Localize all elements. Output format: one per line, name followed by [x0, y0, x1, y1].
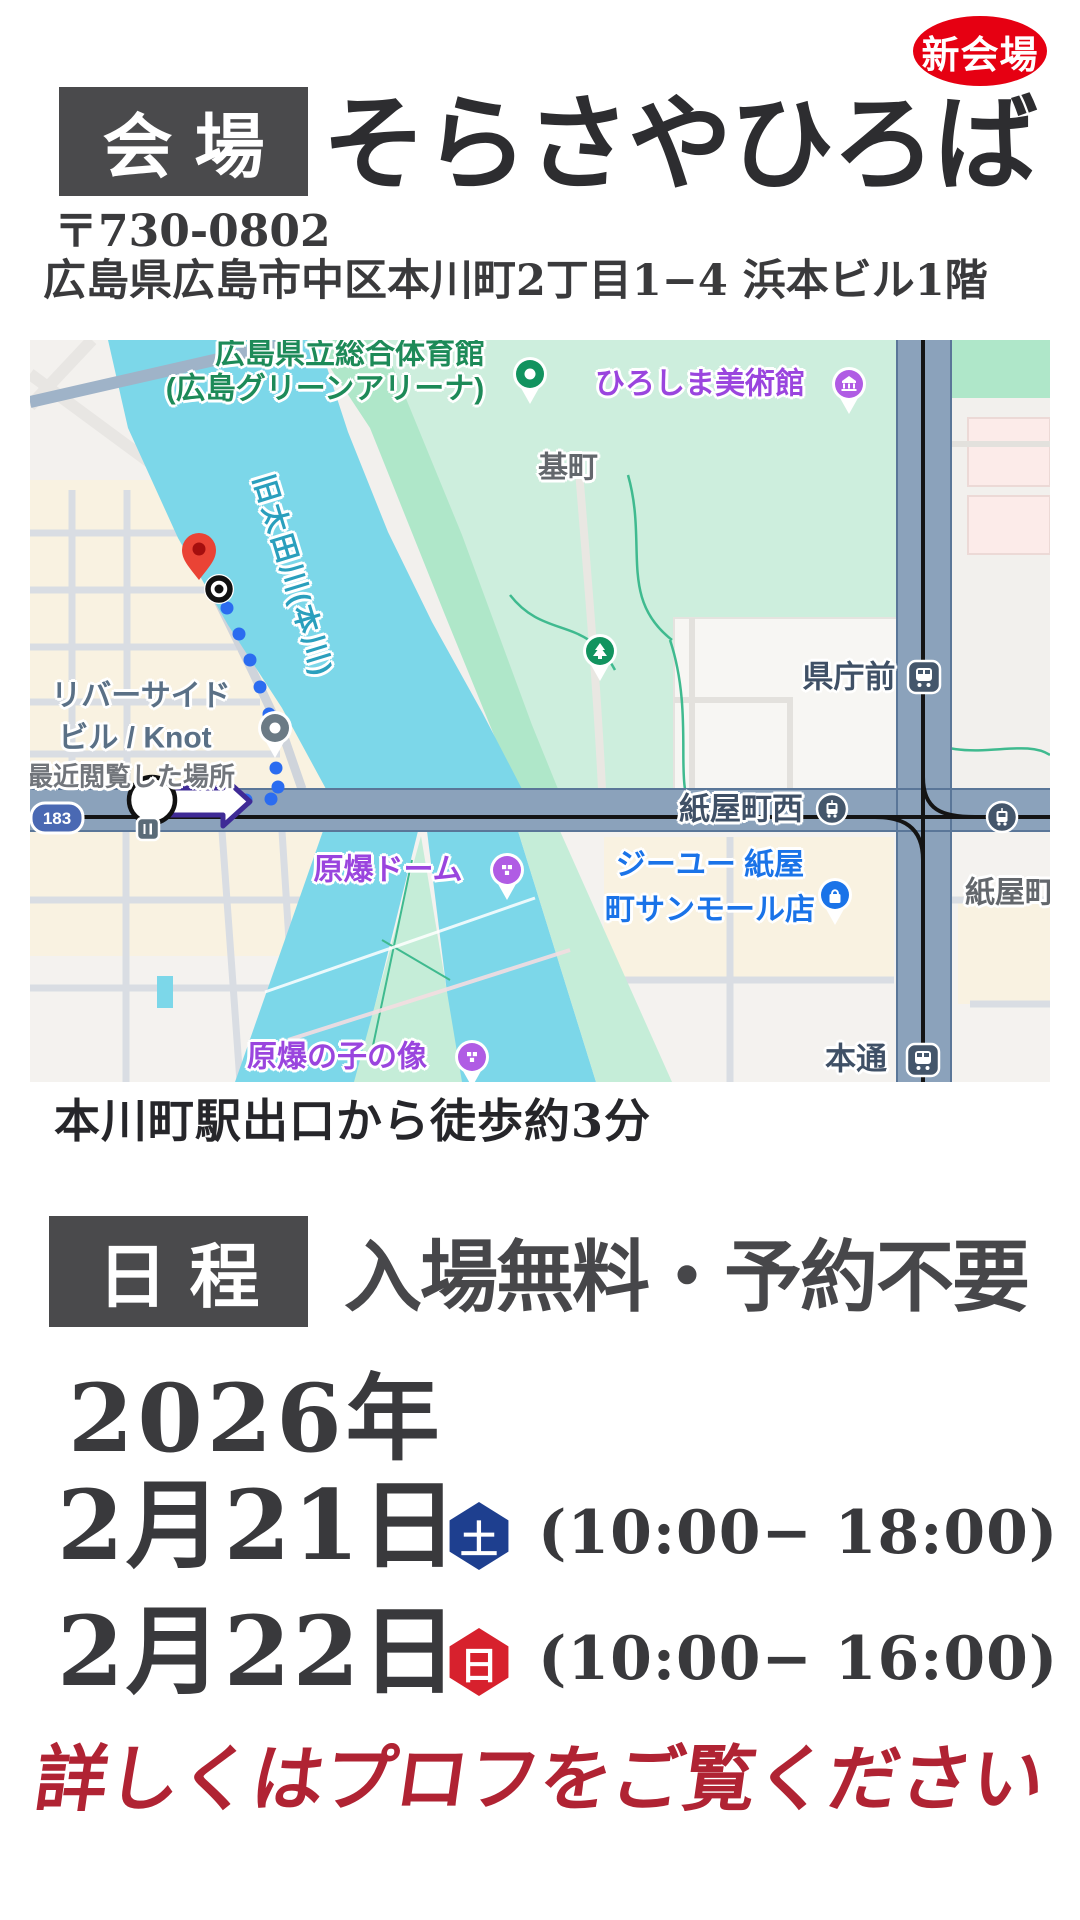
- map-label-gym-line1: 広島県立総合体育館: [215, 340, 485, 370]
- map-label-museum: ひろしま美術館: [595, 368, 805, 400]
- map-label-riverside-line1: リバーサイド: [51, 680, 230, 712]
- svg-text:183: 183: [43, 809, 71, 828]
- tram-stop-icon: [987, 802, 1017, 832]
- map-label-kamiyacho: 紙屋町: [965, 877, 1050, 909]
- map-label-kamiyacho-nishi: 紙屋町西: [679, 794, 803, 827]
- venue-postal-code: 〒730-0802: [54, 210, 331, 254]
- map-label-gu-line2: 町サンモール店: [605, 894, 815, 926]
- event-date-1: 2月21日: [57, 1478, 459, 1574]
- restaurant-icon: [137, 818, 159, 840]
- map-label-hondori: 本通: [825, 1044, 887, 1077]
- venue-address: 広島県広島市中区本川町2丁目1−4 浜本ビル1階: [43, 260, 988, 303]
- map-label-kencho-mae: 県庁前: [803, 662, 896, 695]
- map-label-riverside-line2: ビル / Knot: [58, 722, 211, 754]
- map-label-genbaku-dome: 原爆ドーム: [313, 854, 462, 886]
- event-time-2: (10:00− 16:00): [538, 1629, 1058, 1689]
- footer-note: 詳しくはプロフをご覧ください: [0, 1744, 1080, 1816]
- access-note: 本川町駅出口から徒歩約3分: [54, 1098, 651, 1144]
- tram-stop-icon: [817, 794, 847, 824]
- new-venue-badge: 新会場: [913, 16, 1047, 86]
- event-time-1: (10:00− 18:00): [538, 1503, 1058, 1563]
- train-station-icon: [908, 661, 940, 693]
- map-label-gym-line2: (広島グリーンアリーナ): [166, 373, 484, 405]
- event-date-2: 2月22日: [57, 1604, 459, 1700]
- map-label-recent-place: 最近閲覧した場所: [30, 763, 235, 790]
- map-label-motomachi: 基町: [538, 452, 598, 484]
- train-station-icon: [907, 1044, 939, 1076]
- flyer-page: 新会場 会場 そらさやひろば 〒730-0802 広島県広島市中区本川町2丁目1…: [0, 0, 1080, 1920]
- venue-map: 183: [30, 340, 1050, 1082]
- destination-target-icon: [204, 574, 234, 604]
- venue-section-chip: 会場: [59, 87, 308, 196]
- route-shield: 183: [31, 803, 83, 833]
- admission-note: 入場無料・予約不要: [344, 1238, 1028, 1316]
- schedule-section-chip: 日程: [49, 1216, 308, 1327]
- map-label-gu-line1: ジーユー 紙屋: [616, 849, 804, 881]
- map-label-children-statue: 原爆の子の像: [247, 1041, 427, 1073]
- venue-name: そらさやひろば: [322, 92, 1036, 196]
- event-year: 2026年: [68, 1372, 444, 1466]
